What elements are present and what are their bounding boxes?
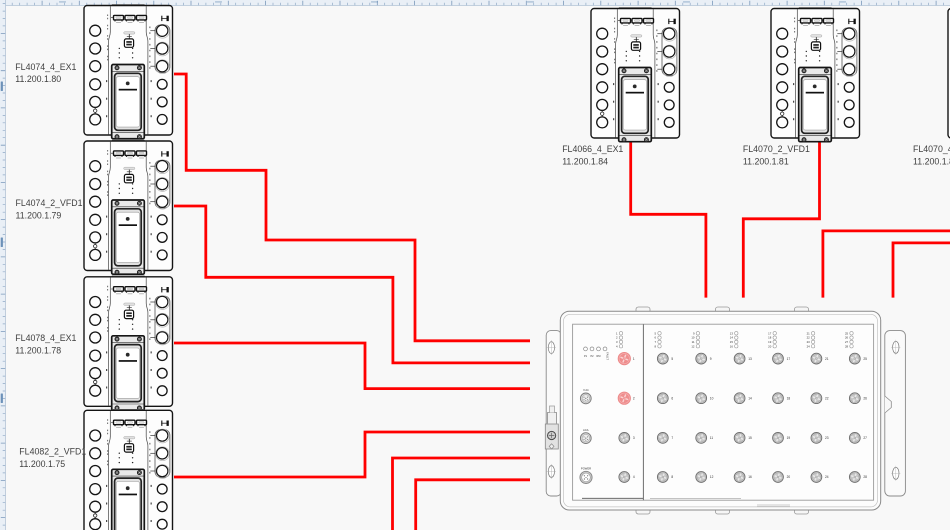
svg-text:FL4066_4_EX1: FL4066_4_EX1 (562, 144, 623, 154)
svg-text:5: 5 (671, 357, 673, 361)
svg-text:21: 21 (825, 357, 829, 361)
svg-text:6: 6 (671, 396, 673, 400)
svg-text:FAULT: FAULT (605, 352, 608, 360)
svg-text:FL4074_4_EX1: FL4074_4_EX1 (15, 62, 76, 72)
svg-text:POWER: POWER (581, 467, 591, 471)
svg-text:14: 14 (748, 396, 752, 400)
svg-text:11.200.1.79: 11.200.1.79 (16, 210, 62, 220)
svg-text:11.200.1.75: 11.200.1.75 (19, 459, 65, 469)
svg-text:18: 18 (787, 396, 791, 400)
svg-text:12: 12 (691, 344, 695, 348)
svg-text:9: 9 (710, 357, 712, 361)
svg-text:19: 19 (787, 436, 791, 440)
svg-text:FL4074_2_VFD1: FL4074_2_VFD1 (16, 198, 83, 208)
svg-text:11.200.1.81: 11.200.1.81 (743, 157, 789, 167)
svg-text:20: 20 (768, 344, 772, 348)
svg-text:16: 16 (748, 475, 752, 479)
svg-text:FL4078_4_EX1: FL4078_4_EX1 (15, 333, 76, 343)
svg-text:25: 25 (863, 357, 867, 361)
svg-text:16: 16 (730, 344, 734, 348)
svg-text:11.200.1.78: 11.200.1.78 (15, 345, 61, 355)
svg-text:11: 11 (710, 436, 714, 440)
svg-text:FL4070_4_EX1: FL4070_4_EX1 (913, 144, 950, 154)
svg-text:24: 24 (825, 475, 829, 479)
svg-text:ACA: ACA (583, 428, 589, 432)
svg-text:22: 22 (825, 396, 829, 400)
svg-text:11.200.1.85: 11.200.1.85 (913, 157, 950, 167)
svg-text:12: 12 (710, 475, 714, 479)
svg-text:27: 27 (863, 436, 867, 440)
svg-text:24: 24 (807, 344, 811, 348)
svg-text:23: 23 (825, 436, 829, 440)
svg-text:FL4070_2_VFD1: FL4070_2_VFD1 (743, 144, 810, 154)
svg-text:26: 26 (863, 396, 867, 400)
svg-text:8: 8 (671, 475, 673, 479)
svg-text:2: 2 (633, 396, 635, 400)
svg-text:1: 1 (633, 357, 635, 361)
svg-text:11.200.1.80: 11.200.1.80 (15, 74, 61, 84)
svg-text:V.24: V.24 (583, 388, 589, 392)
svg-text:28: 28 (863, 475, 867, 479)
svg-text:4: 4 (633, 475, 635, 479)
svg-text:20: 20 (787, 475, 791, 479)
svg-text:13: 13 (748, 357, 752, 361)
svg-text:FL4082_2_VFD1: FL4082_2_VFD1 (19, 447, 86, 457)
svg-text:17: 17 (787, 357, 791, 361)
svg-text:15: 15 (748, 436, 752, 440)
svg-text:10: 10 (710, 396, 714, 400)
svg-text:RM: RM (597, 355, 601, 358)
svg-text:3: 3 (633, 436, 635, 440)
svg-text:28: 28 (845, 344, 849, 348)
svg-text:11.200.1.84: 11.200.1.84 (562, 157, 608, 167)
svg-text:7: 7 (671, 436, 673, 440)
